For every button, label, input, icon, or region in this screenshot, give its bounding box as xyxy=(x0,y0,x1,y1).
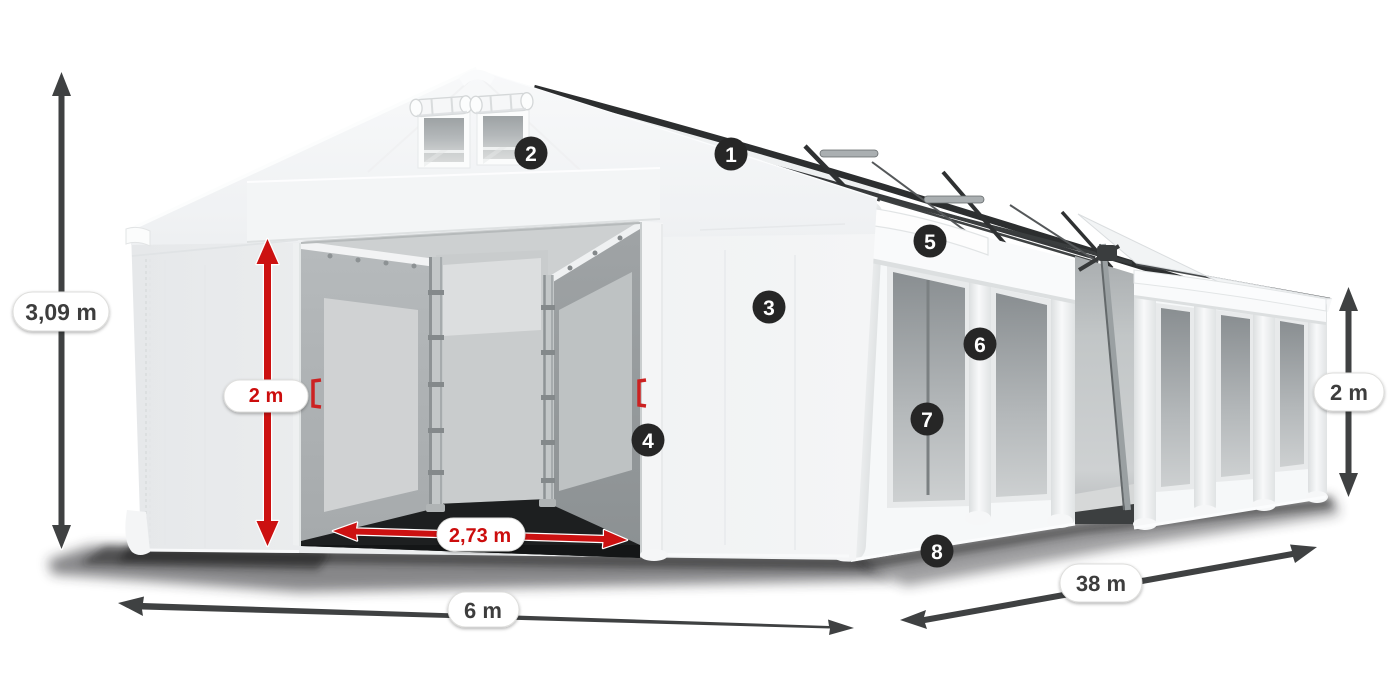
svg-text:2: 2 xyxy=(525,143,537,166)
svg-text:38 m: 38 m xyxy=(1076,571,1126,596)
svg-text:3,09 m: 3,09 m xyxy=(25,299,97,325)
svg-text:6 m: 6 m xyxy=(464,598,502,623)
svg-text:6: 6 xyxy=(974,334,986,357)
svg-text:4: 4 xyxy=(642,430,654,453)
svg-text:2 m: 2 m xyxy=(1330,380,1368,405)
svg-text:2 m: 2 m xyxy=(249,385,283,407)
svg-text:1: 1 xyxy=(725,144,737,167)
svg-text:7: 7 xyxy=(921,409,933,432)
svg-text:3: 3 xyxy=(763,297,775,320)
svg-text:2,73 m: 2,73 m xyxy=(449,525,511,547)
svg-text:5: 5 xyxy=(924,231,936,254)
svg-text:8: 8 xyxy=(931,541,943,564)
